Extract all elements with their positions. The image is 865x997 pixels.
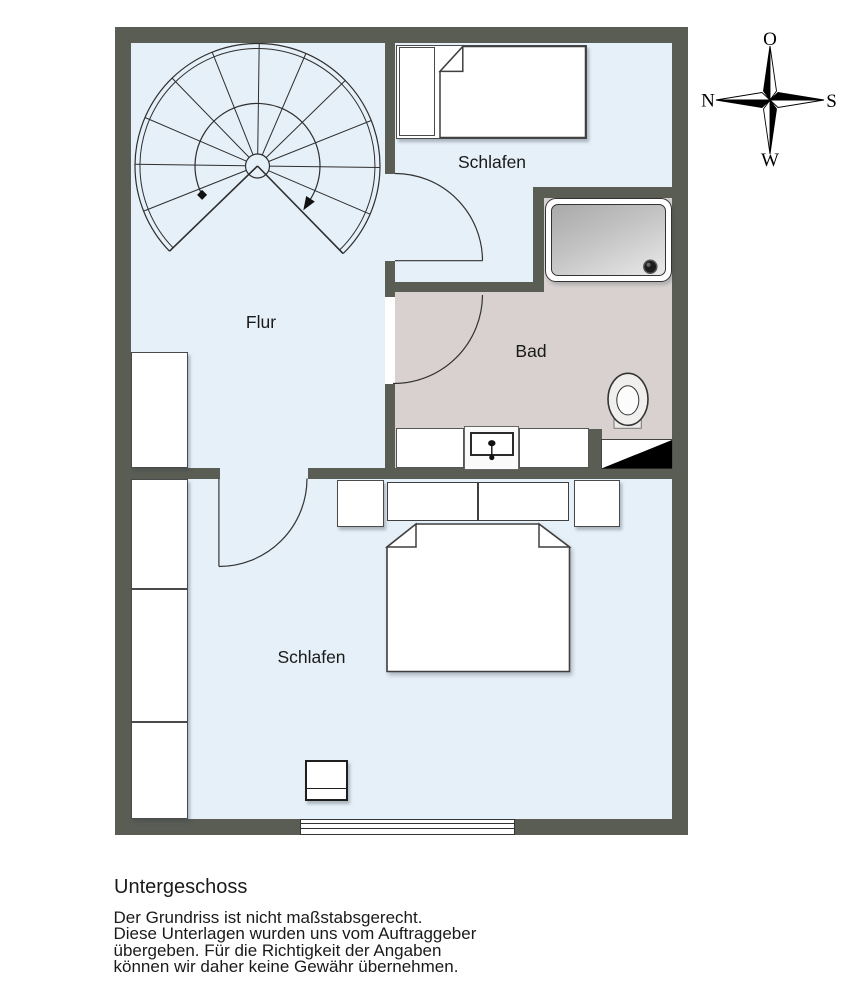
- svg-text:W: W: [761, 150, 779, 171]
- svg-text:N: N: [701, 91, 715, 112]
- svg-text:S: S: [826, 91, 837, 112]
- svg-text:O: O: [763, 29, 777, 50]
